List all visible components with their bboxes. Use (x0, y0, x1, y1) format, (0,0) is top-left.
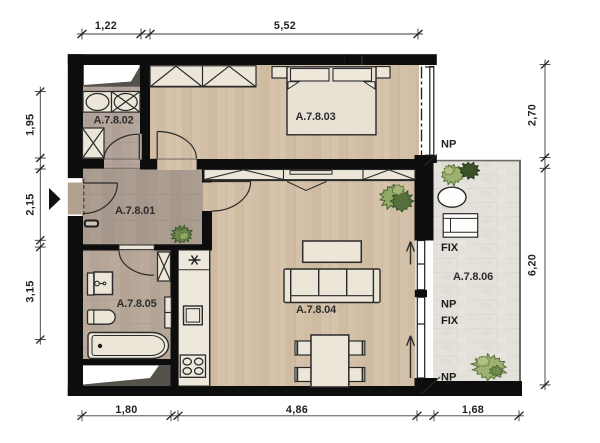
svg-text:A.7.8.04: A.7.8.04 (296, 304, 337, 316)
svg-text:4,86: 4,86 (286, 404, 308, 416)
svg-text:A.7.8.03: A.7.8.03 (296, 111, 336, 123)
svg-text:1,68: 1,68 (462, 404, 484, 416)
svg-text:5,52: 5,52 (274, 20, 296, 32)
svg-text:NP: NP (441, 139, 456, 151)
svg-text:NP: NP (441, 299, 456, 311)
svg-text:2,15: 2,15 (25, 193, 37, 215)
svg-text:3,15: 3,15 (25, 280, 37, 302)
svg-text:A.7.8.02: A.7.8.02 (94, 115, 134, 127)
svg-text:6,20: 6,20 (527, 254, 539, 276)
svg-text:FIX: FIX (441, 315, 459, 327)
svg-text:1,22: 1,22 (95, 20, 117, 32)
svg-text:A.7.8.01: A.7.8.01 (115, 205, 155, 217)
svg-text:A.7.8.05: A.7.8.05 (117, 298, 157, 310)
svg-text:A.7.8.06: A.7.8.06 (453, 271, 493, 283)
svg-text:NP: NP (441, 372, 456, 384)
svg-text:1,95: 1,95 (25, 114, 37, 136)
svg-text:FIX: FIX (441, 242, 459, 254)
svg-text:1,80: 1,80 (115, 404, 137, 416)
svg-text:2,70: 2,70 (527, 104, 539, 126)
